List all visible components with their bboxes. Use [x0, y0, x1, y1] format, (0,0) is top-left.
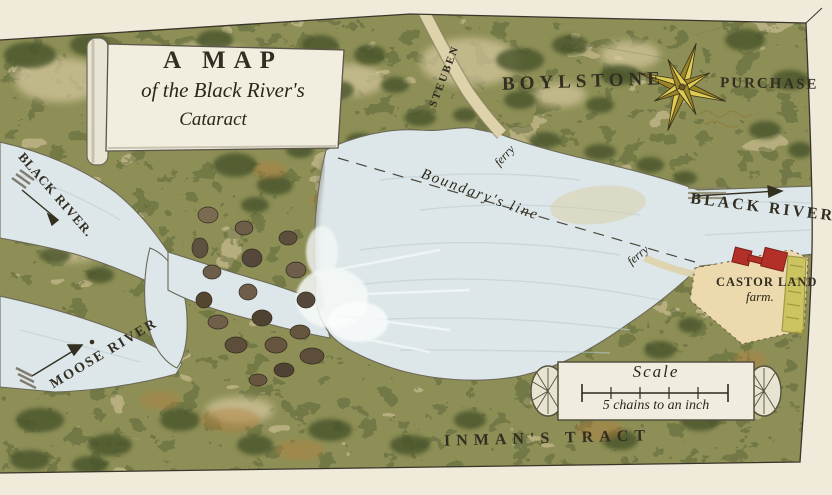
map-canvas: A MAP of the Black River's Cataract BOYL…: [0, 0, 832, 495]
scale-title: Scale: [600, 363, 712, 380]
scale-caption: 5 chains to an inch: [576, 399, 736, 413]
map-title-line1: A MAP: [118, 48, 328, 73]
map-artwork: [0, 0, 832, 495]
map-title-line3: Cataract: [103, 110, 323, 129]
label-castor-farm: farm.: [746, 290, 774, 303]
label-castor-land: CASTOR LAND: [716, 276, 817, 289]
map-title-line2: of the Black River's: [103, 80, 343, 101]
label-purchase: PURCHASE: [720, 76, 819, 93]
